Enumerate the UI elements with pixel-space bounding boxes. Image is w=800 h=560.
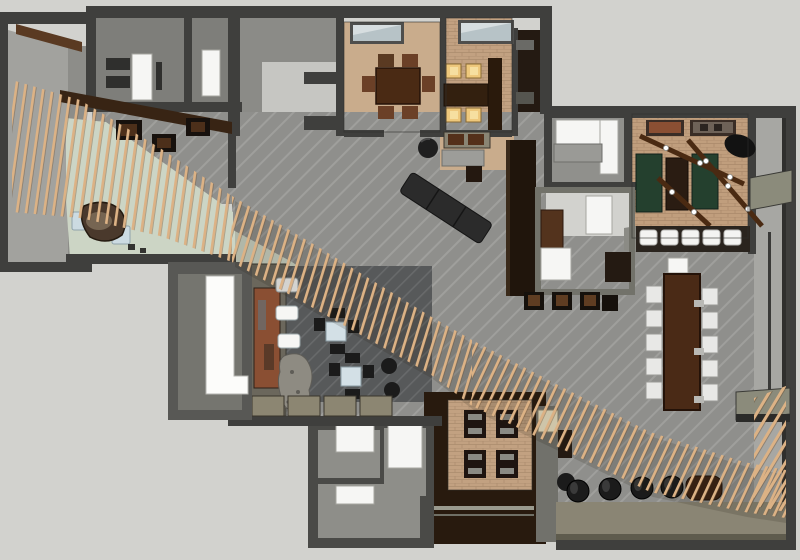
floorplan-render [0,0,800,560]
communal-table [664,274,700,410]
artwork [254,288,280,388]
glass-rail [768,232,771,406]
model-viewport[interactable] [0,0,800,560]
restroom [168,262,252,420]
back-rooms [308,422,434,548]
slat-band-4 [754,386,786,512]
